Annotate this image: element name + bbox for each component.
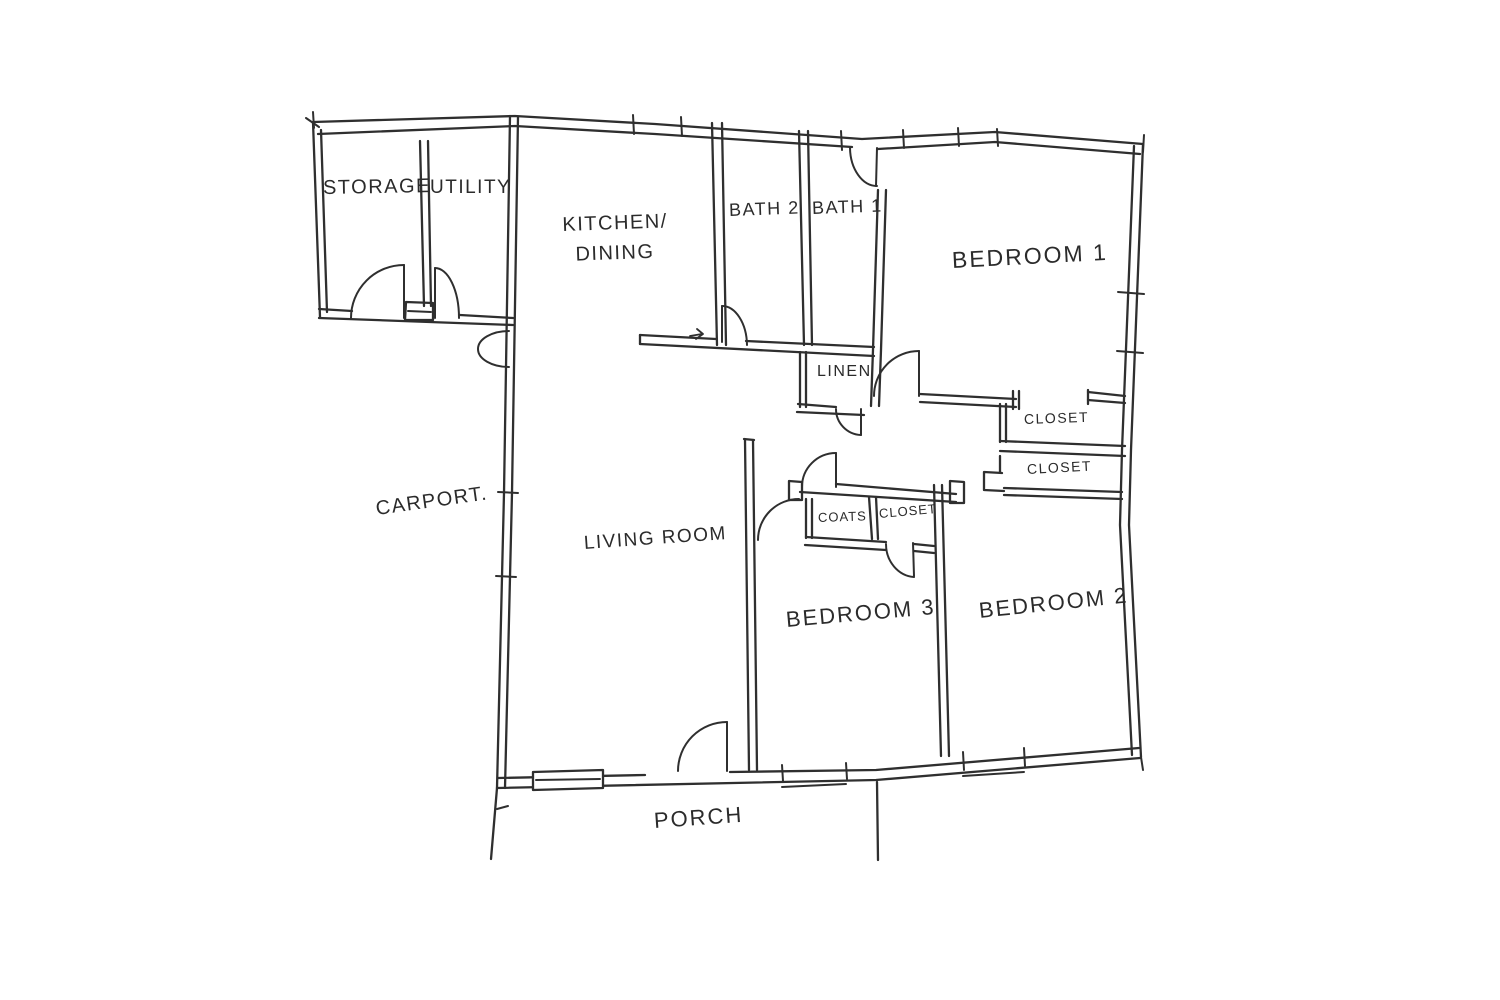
room-label-closet-bottom: CLOSET	[1027, 458, 1093, 477]
kitchen-label-line1: KITCHEN/	[562, 210, 668, 236]
room-label-utility: UTILITY	[430, 177, 511, 199]
front-door-arc	[678, 722, 727, 771]
bedroom2-bedroom3-wall	[934, 485, 949, 756]
kitchen-label-line2: DINING	[575, 240, 669, 266]
hall-wall	[640, 306, 874, 356]
bath1-door-arc	[850, 148, 877, 186]
room-label-kitchen-dining: KITCHEN/ DINING	[562, 210, 669, 267]
bottom-exterior-wall	[497, 748, 1140, 790]
livingroom-bedroom3-wall	[744, 439, 799, 770]
floor-plan-canvas: STORAGE UTILITY KITCHEN/ DINING BATH 2 B…	[0, 0, 1500, 1000]
room-label-bath2: BATH 2	[729, 198, 800, 221]
right-exterior-wall	[1117, 135, 1144, 770]
coats-door-arc	[802, 453, 836, 487]
hall-closet-door-arc	[886, 544, 914, 577]
bedroom1-bottom-wall	[874, 351, 1125, 409]
left-exterior-wall	[478, 116, 518, 788]
floor-plan-walls-group	[306, 112, 1144, 860]
top-exterior-wall	[306, 112, 1143, 154]
storage-door-arc	[351, 265, 404, 318]
storage-utility-annex	[313, 122, 513, 325]
bath1-door-leaf	[876, 148, 877, 186]
room-label-coats: COATS	[818, 508, 867, 525]
room-label-linen: LINEN	[817, 363, 872, 381]
side-door-arc	[478, 331, 509, 367]
utility-door-arc	[435, 268, 459, 318]
floor-plan-drawing	[0, 0, 1500, 1000]
room-label-bath1: BATH 1	[812, 196, 883, 219]
coats-closet-block	[789, 453, 964, 577]
room-label-closet-top: CLOSET	[1024, 409, 1090, 427]
bedroom3-door-arc	[758, 499, 799, 540]
front-door	[678, 722, 727, 771]
hall-closet-door-leaf	[913, 543, 914, 576]
room-label-storage: STORAGE	[323, 175, 431, 200]
